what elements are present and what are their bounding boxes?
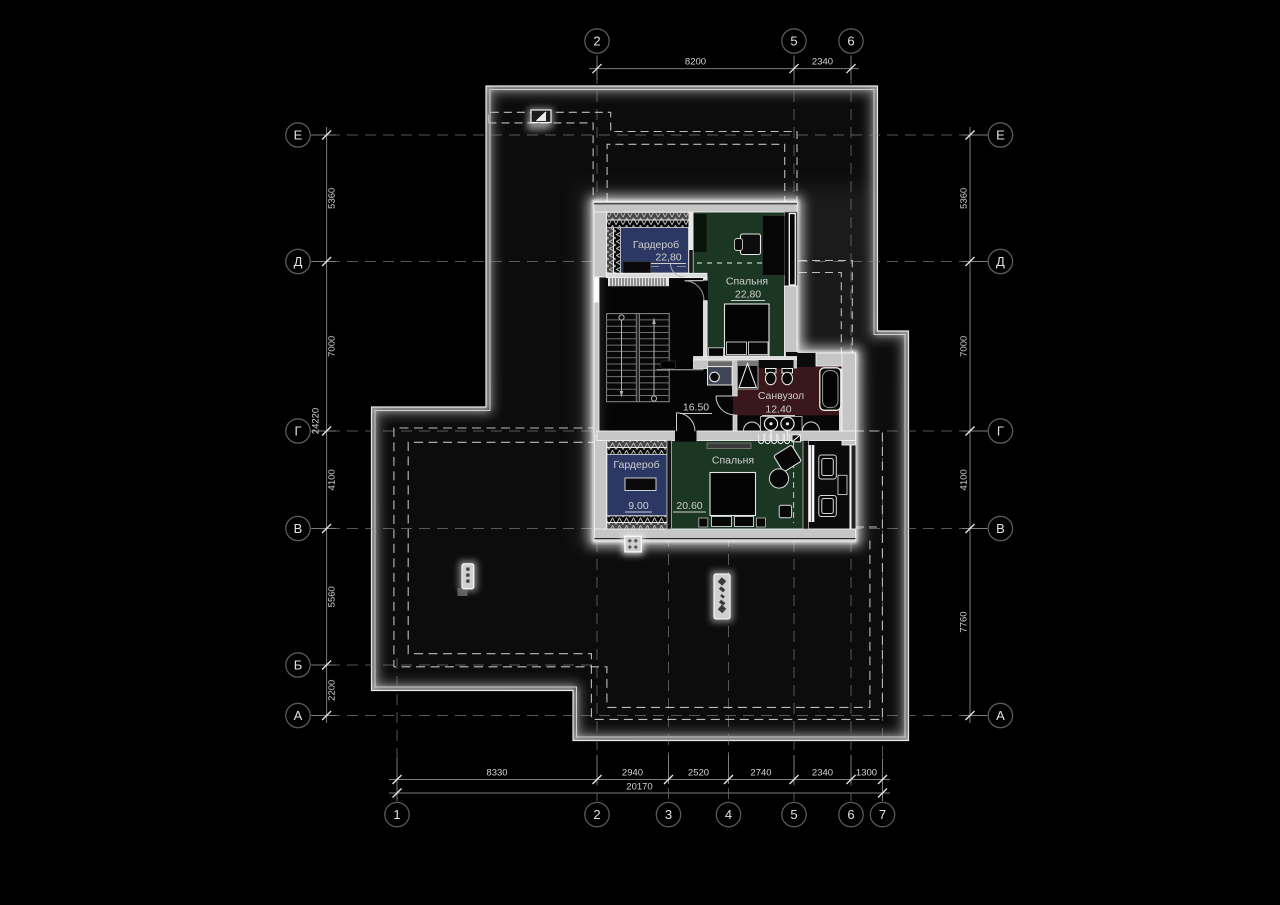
svg-text:20170: 20170 (626, 782, 652, 793)
svg-text:8200: 8200 (685, 57, 706, 68)
svg-text:Гардероб: Гардероб (633, 239, 679, 251)
svg-text:22,80: 22,80 (735, 289, 761, 301)
svg-text:2740: 2740 (750, 768, 771, 779)
svg-text:5560: 5560 (327, 586, 338, 607)
svg-text:Санвузол: Санвузол (758, 390, 804, 402)
svg-text:9.00: 9.00 (628, 500, 649, 512)
svg-text:3: 3 (665, 807, 672, 822)
svg-text:7000: 7000 (959, 336, 970, 357)
svg-text:6: 6 (847, 807, 854, 822)
svg-text:5360: 5360 (959, 188, 970, 209)
svg-text:12.40: 12.40 (765, 404, 791, 416)
svg-text:Г: Г (294, 424, 301, 439)
svg-text:22,80: 22,80 (655, 252, 681, 264)
svg-text:5: 5 (790, 807, 797, 822)
svg-text:2200: 2200 (327, 680, 338, 701)
svg-text:16.50: 16.50 (683, 402, 709, 414)
svg-text:8330: 8330 (486, 768, 507, 779)
svg-text:В: В (996, 521, 1005, 536)
svg-text:5: 5 (790, 34, 797, 49)
svg-text:А: А (294, 708, 303, 723)
svg-text:4100: 4100 (959, 469, 970, 490)
svg-text:7: 7 (879, 807, 886, 822)
svg-text:2940: 2940 (622, 768, 643, 779)
svg-text:6: 6 (847, 34, 854, 49)
svg-text:Спальня: Спальня (712, 455, 754, 467)
svg-text:2520: 2520 (688, 768, 709, 779)
svg-text:Е: Е (996, 128, 1005, 143)
svg-text:20.60: 20.60 (676, 500, 702, 512)
svg-text:Д: Д (996, 254, 1005, 269)
svg-text:7760: 7760 (959, 611, 970, 632)
svg-text:1: 1 (393, 807, 400, 822)
svg-text:Гардероб: Гардероб (613, 459, 659, 471)
svg-text:Д: Д (294, 254, 303, 269)
svg-text:24220: 24220 (311, 408, 322, 434)
svg-text:7000: 7000 (327, 336, 338, 357)
svg-text:2: 2 (593, 807, 600, 822)
svg-text:1300: 1300 (856, 768, 877, 779)
svg-text:Г: Г (997, 424, 1004, 439)
svg-text:4: 4 (725, 807, 732, 822)
svg-text:4100: 4100 (327, 469, 338, 490)
svg-text:Спальня: Спальня (726, 276, 768, 288)
svg-text:2340: 2340 (812, 57, 833, 68)
svg-text:Е: Е (294, 128, 303, 143)
svg-text:Б: Б (294, 658, 303, 673)
svg-text:В: В (294, 521, 303, 536)
svg-text:2340: 2340 (812, 768, 833, 779)
svg-text:5360: 5360 (327, 188, 338, 209)
svg-text:2: 2 (593, 34, 600, 49)
svg-text:А: А (996, 708, 1005, 723)
